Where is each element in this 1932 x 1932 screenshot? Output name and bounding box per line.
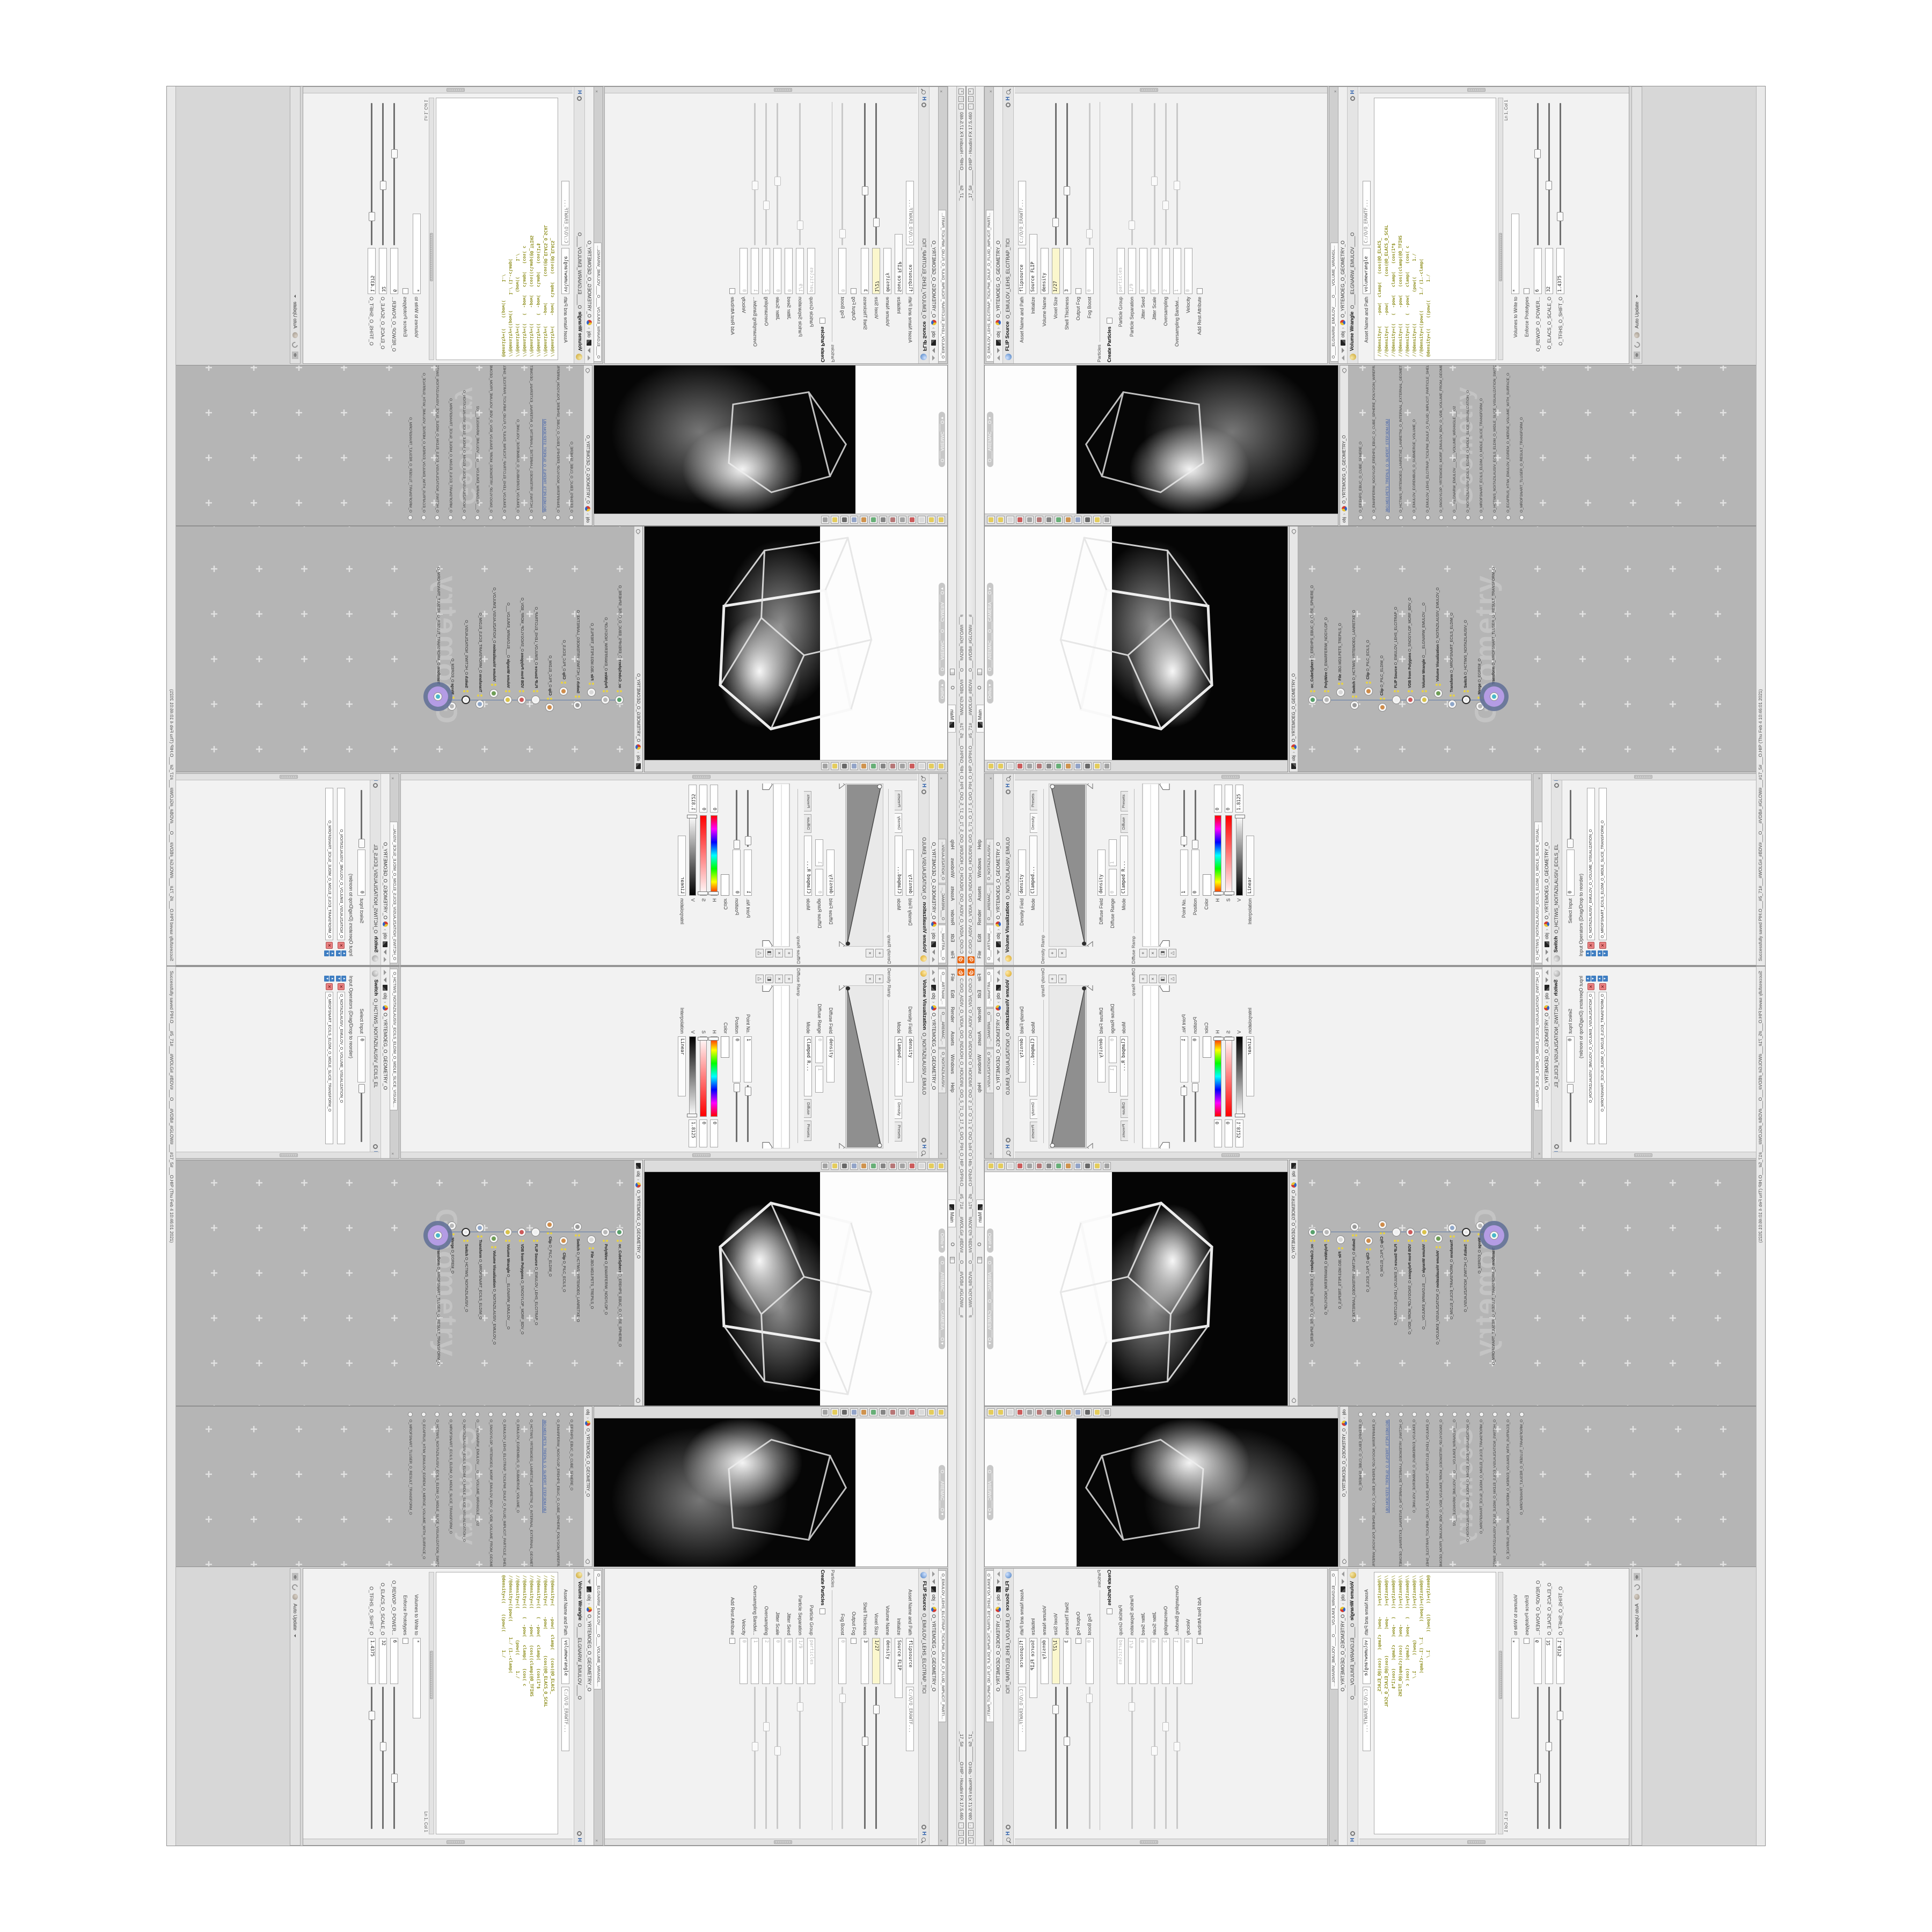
param-checkbox[interactable] — [851, 1638, 857, 1644]
nav-down-icon[interactable] — [382, 977, 387, 983]
translate-tool-icon[interactable] — [997, 762, 1005, 770]
houdini-help-icon[interactable]: H — [1350, 90, 1356, 94]
select-tool-icon[interactable] — [937, 516, 945, 524]
param-checkbox[interactable] — [1075, 288, 1081, 294]
nav-up-icon[interactable] — [994, 1571, 1000, 1577]
desktop-tab-main[interactable]: Main — [949, 1199, 956, 1228]
viewport-canvas[interactable]: Ortho ▾ O___AREMAC___O___CAMERA___O ▾ — [645, 526, 947, 760]
breadcrumb-root[interactable]: obj — [586, 517, 590, 523]
subtab-density[interactable]: Density — [895, 1099, 903, 1119]
density-ramp-widget[interactable]: + × — [838, 784, 883, 957]
pose-tool-icon[interactable] — [1035, 516, 1043, 524]
network-node[interactable]: O_HCTIWS_NOITAZILAUSIV_ECILS_ELDIM_O_MID… — [430, 1412, 444, 1567]
vex-snippet-editor[interactable]: //@density=( -pow( clamp( (cos(@O_ELACS_… — [436, 1572, 558, 1834]
scissors-cut-icon[interactable] — [1074, 1162, 1082, 1170]
param-field[interactable]: 0 — [785, 248, 793, 294]
close-tab-icon[interactable]: × — [989, 1151, 993, 1157]
close-tab-icon[interactable]: × — [939, 89, 943, 94]
auto-update-bar[interactable]: Auto Update — [1631, 86, 1642, 364]
camera-name-pill[interactable]: O___AREMAC___O___CAMERA___O ▾ — [987, 1256, 993, 1349]
network-node[interactable]: O_HCTIWS_NOITAZILAUSIV_ECILS_ELDIM_O_MID… — [1488, 365, 1502, 520]
gear-icon[interactable] — [577, 96, 582, 101]
vex-snippet-editor[interactable]: //@density=( -pow( clamp( (cos(@O_ELACS_… — [1374, 98, 1496, 360]
network-node[interactable]: Switch O_HCTIWS_YRTEMOEG_LANRETXE_O — [1348, 567, 1362, 758]
network-node[interactable]: FLIP Source O_EMULOV_LEHS_ELCITRAP_O — [529, 567, 543, 752]
nav-down-icon[interactable] — [586, 348, 591, 353]
pin-icon[interactable] — [1341, 367, 1347, 373]
scrollbar[interactable] — [1359, 87, 1629, 93]
density-mode-menu[interactable]: Clamped... — [895, 1036, 903, 1096]
network-node[interactable]: JBO.MD3.PETS_TREPILS_O_SLIPERT_STEP.3DM.… — [1381, 365, 1394, 520]
volumes-to-write-field[interactable]: * — [413, 214, 421, 294]
node-flags[interactable] — [1380, 698, 1385, 700]
density-ramp-widget[interactable]: + × — [1049, 975, 1094, 1148]
network-node[interactable]: JBO.MD3.PETS_TREPILS_O_SLIPERT_STEP.3DM.… — [538, 1412, 551, 1567]
density-field[interactable]: density — [906, 850, 914, 896]
param-slider[interactable] — [393, 1687, 395, 1829]
search-icon[interactable] — [922, 777, 926, 781]
viewport-canvas[interactable]: O___AREMAC___O ▾ — [985, 1418, 1338, 1567]
diffuse-mode-menu[interactable]: Clamped R... — [1120, 836, 1128, 896]
param-slider[interactable] — [777, 103, 778, 245]
network-node[interactable]: O_MROFSNART_ECILS_ELDIM_O_MIDLE_SLICE_TR… — [444, 1412, 457, 1567]
value-slider[interactable] — [690, 1036, 697, 1117]
param-slider[interactable] — [1089, 1687, 1091, 1829]
network-node[interactable]: O_EMULOV_LEHS_ELCITRAP_TICILPMI_DIULF_O_… — [497, 365, 511, 520]
translate-tool-icon[interactable] — [927, 516, 935, 524]
param-slider[interactable] — [799, 1687, 801, 1829]
scale-tool-icon[interactable] — [908, 516, 916, 524]
select-input-field[interactable]: 0 — [1567, 850, 1575, 896]
param-checkbox[interactable] — [1107, 318, 1113, 324]
point-no-field[interactable]: 1 — [744, 850, 752, 896]
ramp-delete-point-button[interactable]: × — [1058, 975, 1066, 983]
move-down-button[interactable]: ▼ — [1591, 976, 1596, 982]
translate-tool-icon[interactable] — [997, 1162, 1005, 1170]
breadcrumb-node[interactable]: O_YRTEMOEG_O_GEOMETRY_O — [587, 240, 592, 318]
node-flags[interactable] — [505, 690, 510, 692]
asset-path-field[interactable]: C:/O/O_ERAWTF... — [906, 181, 914, 245]
desktop-tab-main[interactable]: Main — [949, 705, 956, 733]
nav-up-icon[interactable] — [1339, 355, 1344, 361]
param-checkbox[interactable] — [1197, 1638, 1203, 1644]
breadcrumb-node[interactable]: O_YRTEMOEG_O_GEOMETRY_O — [996, 1614, 1001, 1692]
scene-viewport-camera[interactable]: O___AREMAC___O ▾ — [984, 365, 1338, 526]
network-node[interactable]: O_HCTIWS_YRTEMOEG_LANRETXE_LANRETNI_O_IN… — [524, 1412, 538, 1567]
network-node[interactable]: O_MROFSNART_TLUSER_O_RESULT_TRANSFORM_O — [404, 1412, 417, 1567]
saturation-field[interactable]: 0 — [1225, 785, 1233, 813]
auto-update-bar[interactable]: Auto Update — [290, 1568, 301, 1846]
breadcrumb-node[interactable]: O_YRTEMOEG_O_GEOMETRY_O — [383, 842, 388, 919]
network-node[interactable]: O_ECAFRUS_HTIW_EMULOV_EGREM_O_MERGE_VOLU… — [1502, 365, 1515, 520]
select-tool-icon[interactable] — [937, 1162, 945, 1170]
network-node[interactable]: O_SNOGYLOP_YRTEMOEG_MORF_EMULOV_BDV_O_VD… — [484, 365, 497, 520]
node-flags[interactable] — [463, 1240, 469, 1242]
hue-field[interactable]: 0 — [1214, 785, 1222, 813]
translate-tool-icon[interactable] — [997, 516, 1005, 524]
param-slider[interactable] — [1154, 103, 1155, 245]
node-flags[interactable] — [533, 1240, 538, 1242]
point-no-slider[interactable] — [747, 1085, 749, 1142]
select-tool-icon[interactable] — [987, 1162, 995, 1170]
close-button[interactable]: × — [958, 89, 964, 94]
breadcrumb-root[interactable]: obj — [587, 1594, 592, 1601]
window-titlebar[interactable]: C:/O/O_AIDIV_O_VIDIA_O/O_INDUOH_O_HOUDIN… — [956, 967, 965, 1846]
input-operator-field[interactable]: O_MROFSNART_ECILS_ELDIM_O_MIDLE_SLICE_TR… — [325, 992, 333, 1144]
node-flags[interactable] — [491, 1246, 496, 1248]
breadcrumb-root[interactable]: obj — [586, 1409, 590, 1415]
asset-path-field[interactable]: C:/O/O_ERAWTF... — [906, 1687, 914, 1751]
delete-input-button[interactable]: ✕ — [338, 942, 345, 949]
network-node[interactable]: Volume Visualization O_NOITAZILAUSIV_EMU… — [487, 1186, 501, 1365]
move-down-button[interactable]: ▼ — [324, 950, 329, 956]
delete-input-button[interactable]: ✕ — [326, 983, 333, 990]
camera-lock-icon[interactable] — [1103, 1162, 1111, 1170]
node-flags[interactable] — [505, 1240, 510, 1242]
select-input-slider[interactable] — [1570, 790, 1571, 847]
param-field[interactable]: Source FLIP — [1029, 234, 1037, 294]
param-checkbox[interactable] — [1107, 1608, 1113, 1614]
nav-up-icon[interactable] — [994, 970, 1000, 975]
position-field[interactable]: 0 — [733, 850, 741, 896]
scrollbar[interactable] — [401, 774, 917, 780]
interpolation-menu[interactable]: Linear — [1246, 1036, 1254, 1096]
node-flags[interactable] — [1366, 1248, 1371, 1250]
pin-icon[interactable] — [585, 367, 591, 373]
search-icon[interactable] — [922, 1151, 926, 1155]
close-tab-icon[interactable]: × — [1333, 89, 1338, 94]
network-node[interactable]: Merge O_EGREM_O — [445, 1173, 459, 1365]
param-field[interactable]: 6 — [390, 1638, 398, 1684]
ramp-add-point-button[interactable]: + — [785, 975, 793, 983]
network-node[interactable]: O_EMULOV_EGREMBUS_O_SUBMERGE_VOLUME_O — [511, 365, 524, 520]
param-field[interactable]: 1 — [1173, 1638, 1181, 1684]
pin-icon[interactable] — [1291, 528, 1297, 534]
nav-down-icon[interactable] — [382, 949, 387, 955]
pose-tool-icon[interactable] — [1035, 762, 1043, 770]
camera-lock-icon[interactable] — [821, 762, 829, 770]
pane-tab[interactable]: O___ARTNAM_... — [986, 925, 993, 963]
magnet-snap-icon[interactable] — [860, 516, 868, 524]
gear-icon[interactable] — [577, 1831, 582, 1836]
pin-icon[interactable] — [1341, 1558, 1347, 1564]
param-slider[interactable] — [841, 1687, 843, 1829]
minimize-button[interactable]: - — [968, 1823, 974, 1828]
network-node[interactable]: oc_CubeSphere O_EREHPS_EBUC_O_CUBE_SPHER… — [1306, 1180, 1320, 1365]
param-slider[interactable] — [864, 103, 866, 245]
close-tab-icon[interactable]: × — [989, 89, 993, 94]
node-flags[interactable] — [1436, 684, 1441, 686]
param-checkbox[interactable] — [819, 318, 825, 324]
enforce-prototypes-checkbox[interactable] — [402, 288, 408, 294]
view-tool-icon[interactable] — [869, 762, 877, 770]
camera-name-pill[interactable]: O___AREMAC___O___CAMERA___O ▾ — [939, 1256, 945, 1349]
network-node[interactable]: Switch O_HCTIWS_NOITAZILAUSIV_O — [1459, 567, 1473, 752]
param-slider[interactable] — [875, 1687, 877, 1829]
interpolation-menu[interactable]: Linear — [678, 1036, 686, 1096]
asset-name-field[interactable]: flipsource — [906, 1638, 914, 1684]
param-field[interactable]: 1/27 — [1052, 248, 1060, 294]
node-flags[interactable] — [1450, 694, 1455, 697]
scene-viewport-ortho[interactable]: Ortho ▾ O___AREMAC___O___CAMERA___O ▾ — [984, 1160, 1288, 1406]
move-down-button[interactable]: ▼ — [1603, 950, 1608, 956]
pane-tab[interactable]: O____ELGNARW_EMULOV____O____VOLUME_WRANG… — [594, 243, 602, 362]
menu-item[interactable]: Render — [949, 1003, 955, 1027]
quad-layout-icon[interactable] — [831, 1408, 839, 1416]
houdini-help-icon[interactable]: H — [576, 1838, 583, 1842]
network-node[interactable]: O_MROFSNART_TLUSER_O_RESULT_TRANSFORM_O — [1515, 1412, 1528, 1567]
param-field[interactable]: density — [1041, 1638, 1049, 1684]
splitter-handle-icon[interactable] — [292, 1573, 298, 1580]
param-field[interactable]: density — [883, 1638, 891, 1684]
move-up-button[interactable]: ▲ — [341, 950, 346, 956]
breadcrumb-node[interactable]: O_YRTEMOEG_O_GEOMETRY_O — [931, 1013, 936, 1090]
snap-grid-icon[interactable] — [1045, 762, 1053, 770]
network-node[interactable]: O_EMULOV_LEHS_ELCITRAP_TICILPMI_DIULF_O_… — [1421, 1412, 1435, 1567]
auto-update-bar[interactable]: Auto Update — [290, 86, 301, 364]
houdini-help-icon[interactable]: H — [921, 97, 927, 100]
diffuse-range-max-field[interactable]: 1 — [815, 1066, 823, 1093]
scene-viewport-camera[interactable]: O___AREMAC___O ▾ — [594, 365, 948, 526]
pane-tab[interactable]: O_EMULOV_LEHS_ELCITRAP_TICILPMI_DIULF_O_… — [939, 1570, 946, 1722]
gear-icon[interactable] — [1006, 1138, 1011, 1143]
param-field[interactable]: 0 — [838, 1638, 846, 1684]
network-node[interactable]: O___ELGNARW_EMULOV___O___VOLUME_WRANGLE_… — [471, 1412, 484, 1567]
scissors-cut-icon[interactable] — [850, 1162, 858, 1170]
density-field[interactable]: density — [906, 1036, 914, 1082]
volumes-to-write-field[interactable]: * — [413, 1638, 421, 1718]
value-slider[interactable] — [690, 815, 697, 896]
param-slider[interactable] — [1548, 1687, 1550, 1829]
value-slider[interactable] — [1236, 1036, 1243, 1117]
ramp-delete-point-button[interactable]: × — [866, 975, 874, 983]
menu-item[interactable]: Assets — [949, 1028, 955, 1050]
pane-tab[interactable]: O___AREMAC_... — [939, 884, 946, 924]
ramp-marker-button[interactable]: △ — [756, 949, 764, 957]
saturation-slider[interactable] — [700, 1036, 707, 1117]
value-field[interactable]: 1.8125 — [1235, 785, 1243, 813]
volumes-to-write-field[interactable]: * — [1511, 1638, 1519, 1718]
diffuse-ramp-widget[interactable]: + × ◨ △ — [1139, 975, 1176, 1148]
quad-layout-icon[interactable] — [1093, 1408, 1101, 1416]
scene-viewport-ortho[interactable]: Ortho ▾ O___AREMAC___O___CAMERA___O ▾ — [644, 526, 948, 772]
diffuse-range-max-field[interactable]: 1 — [815, 839, 823, 866]
pane-tab[interactable]: O___AREMAC_... — [986, 1008, 993, 1048]
close-tab-icon[interactable]: × — [594, 89, 599, 94]
breadcrumb-root[interactable]: obj — [996, 993, 1001, 999]
menu-item[interactable]: File — [949, 970, 955, 985]
menu-item[interactable]: Windows — [976, 854, 983, 882]
param-slider[interactable] — [765, 1687, 767, 1829]
scrollbar[interactable] — [605, 87, 917, 93]
render-view-icon[interactable] — [1084, 516, 1092, 524]
point-no-slider[interactable] — [747, 790, 749, 847]
param-field[interactable]: particles — [1117, 1638, 1125, 1684]
network-node[interactable]: O_SNOGYLOP_YRTEMOEG_MORF_EMULOV_BDV_O_VD… — [1435, 1412, 1448, 1567]
gear-icon[interactable] — [1350, 96, 1355, 101]
ramp-marker-button[interactable]: △ — [756, 975, 764, 983]
delete-input-button[interactable]: ✕ — [1587, 983, 1594, 990]
ramp-invert-button[interactable]: ◨ — [1159, 975, 1167, 983]
ramp-invert-button[interactable]: ◨ — [765, 975, 773, 983]
camera-lock-icon[interactable] — [1103, 1408, 1111, 1416]
horizontal-scrollbar[interactable] — [1498, 98, 1503, 360]
close-tab-icon[interactable]: × — [1333, 1838, 1338, 1843]
menu-item[interactable]: Windows — [976, 1051, 983, 1078]
node-flags[interactable] — [547, 1232, 552, 1234]
param-field[interactable]: 1.4375 — [1556, 1638, 1564, 1684]
houdini-help-icon[interactable]: H — [1350, 1838, 1356, 1842]
pin-icon[interactable] — [635, 1397, 641, 1403]
ramp-add-point-button[interactable]: + — [1139, 949, 1147, 957]
render-view-icon[interactable] — [1084, 762, 1092, 770]
pane-layout-icon[interactable] — [977, 669, 982, 675]
search-icon[interactable] — [1006, 1838, 1011, 1842]
viewport-canvas[interactable]: O___AREMAC___O ▾ — [594, 365, 947, 514]
rotate-tool-icon[interactable] — [918, 516, 926, 524]
network-node[interactable]: Switch O_HCTIWS_NOITAZILAUSIV_O — [1459, 1180, 1473, 1365]
network-node[interactable]: Clip O_PILC_ECILS_O — [1362, 1188, 1375, 1365]
pane-layout-icon[interactable] — [977, 1257, 982, 1263]
menu-item[interactable]: Windows — [949, 1051, 955, 1078]
network-node[interactable]: O_EMARFERIW_NOGYLOP_EREHPS_EBUC_O_CUBE_S… — [1367, 1412, 1381, 1567]
node-flags[interactable] — [1324, 690, 1329, 692]
gear-icon[interactable] — [921, 1138, 926, 1143]
move-down-button[interactable]: ▼ — [336, 950, 341, 956]
density-ramp-widget[interactable]: + × — [838, 975, 883, 1148]
asset-path-field[interactable]: C:/O/O_ERAWTF... — [561, 181, 569, 245]
param-slider[interactable] — [1165, 103, 1167, 245]
node-flags[interactable] — [575, 696, 580, 698]
recook-icon[interactable] — [1633, 1583, 1641, 1591]
preset-button[interactable]: Presets — [1121, 1121, 1128, 1140]
node-flags[interactable] — [1380, 1232, 1385, 1234]
param-field[interactable]: Source FLIP — [895, 1638, 903, 1698]
network-node[interactable]: JBO.MD3.PETS_TREPILS_O_SLIPERT_STEP.3DM.… — [1381, 1412, 1394, 1567]
param-field[interactable]: 0 — [1139, 1638, 1147, 1684]
node-flags[interactable] — [477, 1235, 482, 1238]
camera-name-pill[interactable]: O___AREMAC___O ▾ — [939, 412, 945, 467]
menu-item[interactable]: Windows — [949, 854, 955, 882]
scene-viewport-ortho[interactable]: Ortho ▾ O___AREMAC___O___CAMERA___O ▾ — [644, 1160, 948, 1406]
network-node[interactable]: Volume Wrangle O___ELGNARW_EMULOV___O — [1417, 567, 1431, 752]
param-field[interactable]: 0 — [1184, 1638, 1192, 1684]
network-editor-geometry[interactable]: obj › O_YRTEMOEG_O_GEOMETRY_O Geometry O… — [1340, 365, 1757, 526]
nav-down-icon[interactable] — [997, 1579, 1002, 1584]
menu-item[interactable]: Edit — [976, 930, 983, 946]
nav-down-icon[interactable] — [1546, 977, 1551, 983]
snap-grid-icon[interactable] — [879, 1162, 887, 1170]
view-mode-pill[interactable]: Ortho ▾ — [939, 679, 945, 704]
diffuse-range-min-field[interactable]: 0 — [1109, 1036, 1117, 1063]
gear-icon[interactable] — [1350, 1831, 1355, 1836]
diffuse-field[interactable]: density — [1097, 850, 1106, 896]
render-view-icon[interactable] — [840, 762, 848, 770]
scale-tool-icon[interactable] — [908, 1408, 916, 1416]
handles-tool-icon[interactable] — [898, 1162, 906, 1170]
breadcrumb-root[interactable]: obj — [1291, 755, 1296, 761]
param-slider[interactable] — [1176, 1687, 1178, 1829]
select-tool-icon[interactable] — [937, 1408, 945, 1416]
value-slider[interactable] — [1236, 815, 1243, 896]
network-node[interactable]: O_HCTIWS_NOITAZILAUSIV_ECILS_ELDIM_O_MID… — [1488, 1412, 1502, 1567]
close-tab-icon[interactable]: × — [989, 1838, 993, 1843]
menu-item[interactable]: Assets — [976, 882, 983, 904]
breadcrumb-node[interactable]: O_YRTEMOEG_O_GEOMETRY_O — [996, 1013, 1001, 1090]
pose-tool-icon[interactable] — [889, 516, 897, 524]
param-checkbox[interactable] — [729, 288, 735, 294]
houdini-help-icon[interactable]: H — [921, 1145, 927, 1148]
houdini-help-icon[interactable]: H — [1005, 784, 1012, 787]
network-node[interactable]: Switch O_HCTIWS_NOITAZILAUSIV_O — [459, 1180, 473, 1365]
gear-icon[interactable] — [921, 1825, 926, 1829]
move-up-button[interactable]: ▲ — [330, 976, 334, 982]
param-field[interactable]: 0 — [740, 1638, 748, 1684]
subtab-density[interactable]: Density — [1030, 813, 1037, 833]
asset-name-field[interactable]: volumewrangle — [561, 248, 569, 294]
breadcrumb-root[interactable]: obj — [587, 331, 592, 338]
breadcrumb-node[interactable]: O_YRTEMOEG_O_GEOMETRY_O — [931, 240, 936, 318]
input-operator-field[interactable]: O_MROFSNART_ECILS_ELDIM_O_MIDLE_SLICE_TR… — [1599, 992, 1607, 1144]
network-editor-geometry[interactable]: obj › O_YRTEMOEG_O_GEOMETRY_O Geometry O… — [1340, 1406, 1757, 1567]
vex-snippet-editor[interactable]: //@density=( -pow( clamp( (cos(@O_ELACS_… — [1374, 1572, 1496, 1834]
scale-tool-icon[interactable] — [908, 762, 916, 770]
splitter-handle-icon[interactable] — [1634, 1573, 1640, 1580]
auto-update-label[interactable]: Auto Update — [292, 302, 298, 328]
pane-tab[interactable]: O_EMULOV_LEHS_ELCITRAP_TICILPMI_DIULF_O_… — [986, 210, 993, 362]
view-tool-icon[interactable] — [1055, 516, 1063, 524]
param-slider[interactable] — [1548, 103, 1550, 245]
network-node[interactable]: Switch O_HCTIWS_YRTEMOEG_LANRETXE_O — [1348, 1174, 1362, 1365]
param-field[interactable]: 0 — [1086, 1638, 1094, 1684]
diffuse-range-max-field[interactable]: 1 — [1109, 839, 1117, 866]
horizontal-scrollbar[interactable] — [1498, 1572, 1503, 1834]
move-up-button[interactable]: ▲ — [330, 950, 334, 956]
node-flags[interactable] — [589, 683, 594, 685]
hue-slider[interactable] — [711, 1036, 718, 1117]
menu-item[interactable]: Help — [976, 1079, 983, 1096]
scrollbar[interactable] — [1015, 1839, 1327, 1845]
network-node[interactable]: PolyWire O_EMARFERIW_NOGYLOP_O — [598, 1180, 612, 1365]
param-slider[interactable] — [1560, 1687, 1561, 1829]
recook-icon[interactable] — [1633, 341, 1641, 349]
param-slider[interactable] — [382, 103, 384, 245]
pane-tab[interactable]: O____ELGNARW_EMULOV____O____VOLUME_WRANG… — [1330, 243, 1338, 362]
scrollbar[interactable] — [605, 1839, 917, 1845]
param-slider[interactable] — [1055, 1687, 1057, 1829]
network-node[interactable]: O_NOITAZILAUSIV_ECILS_ELDIM_O_MIDLE_SLIC… — [1461, 365, 1475, 520]
node-flags[interactable] — [1394, 690, 1399, 692]
ramp-delete-point-button[interactable]: × — [775, 949, 783, 957]
network-node[interactable]: Clip O_PILC_ELDIM_O — [1375, 567, 1389, 760]
magnet-snap-icon[interactable] — [860, 1162, 868, 1170]
param-field[interactable]: 6 — [1534, 1638, 1542, 1684]
close-tab-icon[interactable]: × — [939, 1838, 943, 1843]
color-swatch[interactable] — [721, 1036, 730, 1058]
view-tool-icon[interactable] — [1055, 1162, 1063, 1170]
nav-up-icon[interactable] — [1543, 957, 1548, 962]
select-tool-icon[interactable] — [937, 762, 945, 770]
scrollbar[interactable] — [175, 774, 379, 780]
network-node[interactable]: O___ELGNARW_EMULOV___O___VOLUME_WRANGLE_… — [1448, 1412, 1461, 1567]
menu-item[interactable]: Help — [949, 1079, 955, 1096]
breadcrumb-node[interactable]: O_YRTEMOEG_O_GEOMETRY_O — [996, 842, 1001, 919]
network-node[interactable]: Transform O_MROFSNART_TLUSER_O_RESULT_TR… — [431, 567, 445, 749]
scrollbar[interactable] — [175, 1152, 379, 1158]
network-node[interactable]: O_ECAFRUS_HTIW_EMULOV_EGREM_O_MERGE_VOLU… — [1502, 1412, 1515, 1567]
density-field[interactable]: density — [1018, 850, 1026, 896]
camera-lock-icon[interactable] — [1103, 762, 1111, 770]
